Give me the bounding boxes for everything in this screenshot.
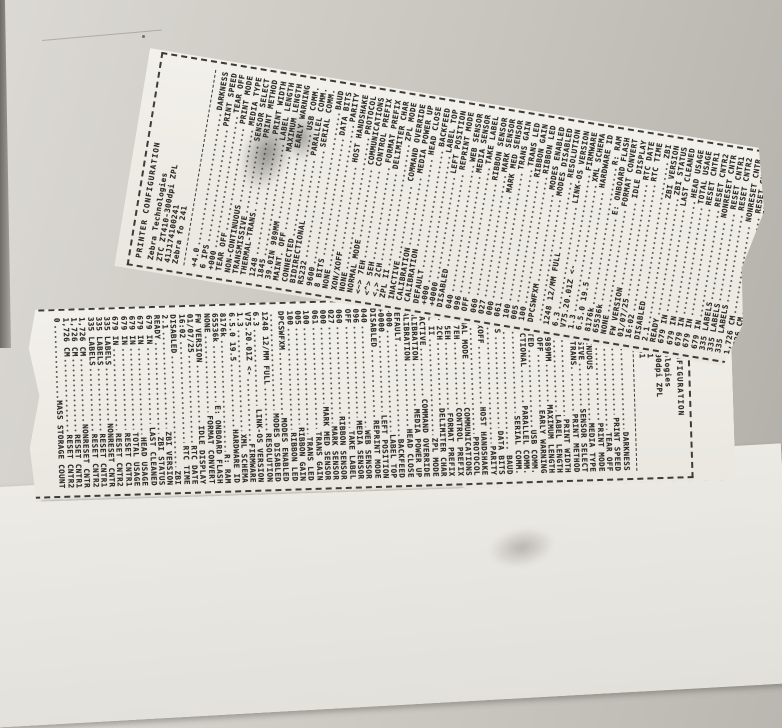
config-value: 0 (52, 318, 60, 323)
config-value: 100 (284, 311, 293, 326)
gray-smudge (470, 511, 574, 583)
photo-of-printer-config-labels: { "palette":{ "paper":"#f0eee8", "ink":"… (0, 0, 782, 626)
config-value: DPCSWFXM (276, 311, 286, 351)
config-param-name: ZBI (173, 470, 182, 485)
config-value: CALIBRATION (401, 307, 411, 361)
config-value: 6.3 (251, 312, 260, 327)
leader-dots (460, 362, 470, 404)
table-left-edge-shadow (0, 0, 11, 348)
leader-dots (411, 364, 421, 406)
config-value: 16:02 (177, 314, 186, 339)
config-param-name: RESET CNTR2 (763, 161, 780, 216)
config-value: 1,726 CM (61, 318, 71, 358)
config-value: DISABLED (367, 308, 377, 348)
leader-dots (577, 363, 587, 405)
leader-dots (535, 355, 545, 407)
config-value: 061 (309, 310, 318, 325)
leader-dots (104, 368, 114, 420)
config-value: DISABLED (168, 314, 178, 354)
leader-dots (419, 349, 429, 396)
config-value: NONE (202, 313, 211, 333)
config-value: 060 (334, 309, 343, 324)
leader-dots (519, 370, 528, 403)
leader-dots (749, 253, 773, 352)
config-param-name: MASS STORAGE COUNT (765, 162, 782, 251)
leader-dots (544, 364, 553, 401)
config-param-name: PARITY (488, 446, 497, 476)
leader-dots (569, 373, 578, 410)
config-param-name: MASS STORAGE COUNT (55, 400, 66, 489)
surface-speck (142, 35, 145, 38)
config-value: OFF (343, 309, 352, 324)
config-value: 0 (747, 353, 756, 359)
